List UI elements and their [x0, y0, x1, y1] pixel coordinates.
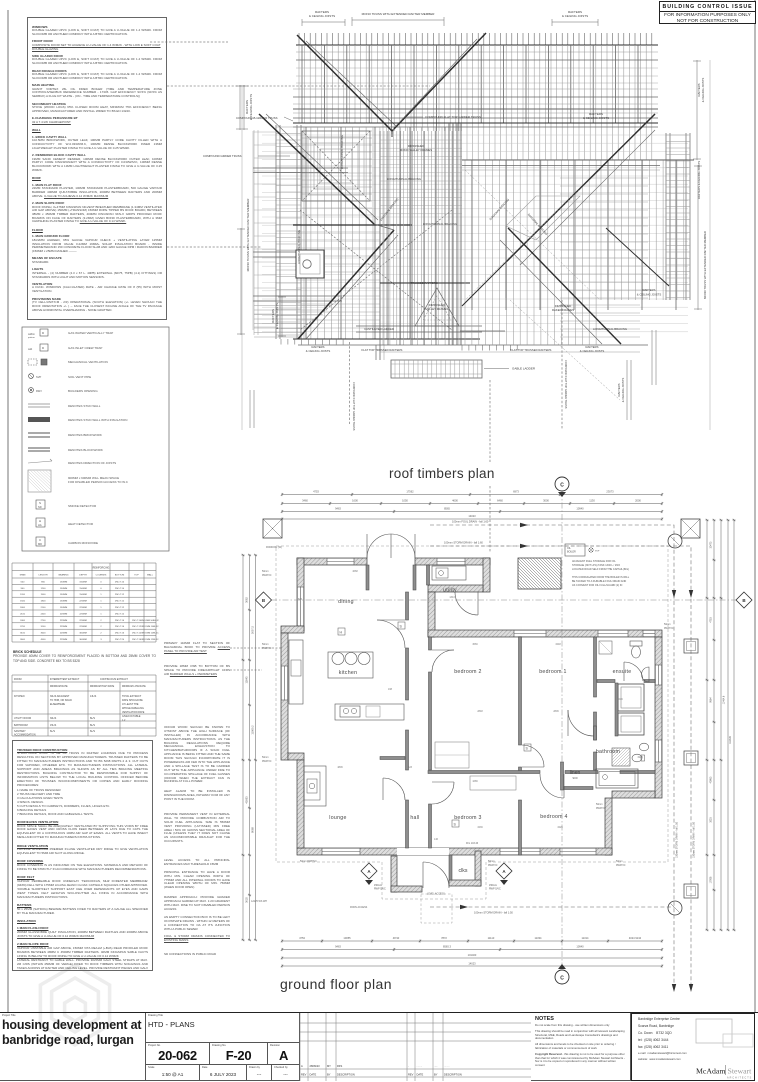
- svg-text:RFS: RFS: [337, 1064, 342, 1068]
- svg-text:-: -: [408, 1065, 409, 1068]
- svg-text:8L/S: 8L/S: [90, 717, 95, 720]
- svg-text:UTILITY ROOM: UTILITY ROOM: [14, 717, 31, 720]
- svg-text:ARCHITECTS: ARCHITECTS: [727, 1077, 752, 1080]
- svg-text:TOTAL EXTRACT: TOTAL EXTRACT: [122, 695, 142, 698]
- svg-text:6L/S: 6L/S: [50, 730, 55, 733]
- svg-text:BATHROOM: BATHROOM: [14, 724, 28, 727]
- svg-text:6L/S: 6L/S: [90, 730, 95, 733]
- svg-text:28/09/23: 28/09/23: [310, 1064, 321, 1068]
- svg-text:CONTINUOUS EXTRACT: CONTINUOUS EXTRACT: [100, 678, 128, 681]
- svg-text:A: A: [301, 1064, 303, 1068]
- svg-text:REV: REV: [301, 1073, 307, 1077]
- svg-text:MINIMUM HIGH RATE: MINIMUM HIGH RATE: [90, 685, 115, 688]
- svg-text:Stewart: Stewart: [728, 1067, 753, 1076]
- svg-text:RATE SHOULD BE: RATE SHOULD BE: [122, 699, 143, 702]
- svg-text:BY: BY: [434, 1073, 438, 1077]
- svg-text:1.2: 1.2: [122, 719, 126, 722]
- svg-text:30L/S: 30L/S: [50, 717, 57, 720]
- svg-text:13L/S: 13L/S: [90, 695, 97, 698]
- svg-text:DATE: DATE: [417, 1073, 424, 1077]
- svg-text:VENTILATION RATE: VENTILATION RATE: [122, 711, 145, 714]
- svg-text:DESCRIPTION: DESCRIPTION: [444, 1073, 462, 1077]
- svg-text:......-: ......-: [417, 1065, 422, 1068]
- svg-text:8L/S: 8L/S: [90, 724, 95, 727]
- svg-text:BY: BY: [327, 1073, 331, 1077]
- svg-text:DESCRIPTION: DESCRIPTION: [337, 1073, 355, 1077]
- svg-text:AT LEAST THE: AT LEAST THE: [122, 703, 139, 706]
- svg-text:KITCHEN: KITCHEN: [14, 695, 25, 698]
- svg-text:..-..: ..-..: [434, 1065, 438, 1068]
- svg-text:ROOM: ROOM: [14, 678, 21, 681]
- svg-text:MINIMUM LOW RATE: MINIMUM LOW RATE: [122, 685, 146, 688]
- svg-text:REV: REV: [408, 1073, 414, 1077]
- svg-text:30L/S ADJACENT: 30L/S ADJACENT: [50, 695, 70, 698]
- svg-text:GIVEN IN TABLE: GIVEN IN TABLE: [122, 715, 141, 718]
- svg-text:TO HOB, OR SOLID: TO HOB, OR SOLID: [50, 699, 72, 702]
- svg-text:MY: MY: [327, 1064, 331, 1068]
- svg-text:ELSEWHERE: ELSEWHERE: [50, 703, 65, 706]
- svg-text:15L/S: 15L/S: [50, 724, 57, 727]
- svg-text:DATE: DATE: [310, 1073, 317, 1077]
- svg-text:........: ........: [444, 1065, 450, 1068]
- svg-text:INTERMITTENT EXTRACT: INTERMITTENT EXTRACT: [50, 678, 80, 681]
- svg-text:WHOLE DWELLING: WHOLE DWELLING: [122, 707, 144, 710]
- svg-text:McAdam: McAdam: [696, 1067, 725, 1076]
- svg-text:ACCOMMODATION: ACCOMMODATION: [14, 734, 36, 737]
- svg-text:MINIMUM RATE: MINIMUM RATE: [50, 685, 68, 688]
